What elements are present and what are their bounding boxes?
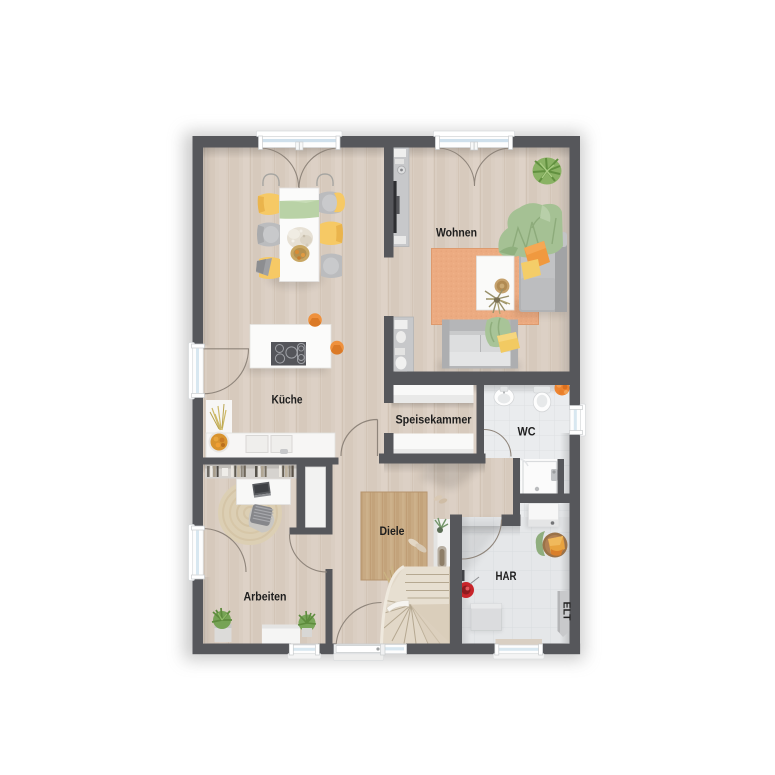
svg-text:WC: WC — [518, 425, 536, 439]
svg-text:ELT: ELT — [561, 601, 573, 621]
svg-text:Küche: Küche — [272, 393, 303, 407]
svg-text:Diele: Diele — [380, 524, 405, 538]
svg-text:Arbeiten: Arbeiten — [244, 590, 287, 604]
svg-text:HAR: HAR — [496, 569, 517, 583]
svg-text:Wohnen: Wohnen — [436, 226, 477, 240]
svg-text:Speisekammer: Speisekammer — [396, 413, 472, 427]
